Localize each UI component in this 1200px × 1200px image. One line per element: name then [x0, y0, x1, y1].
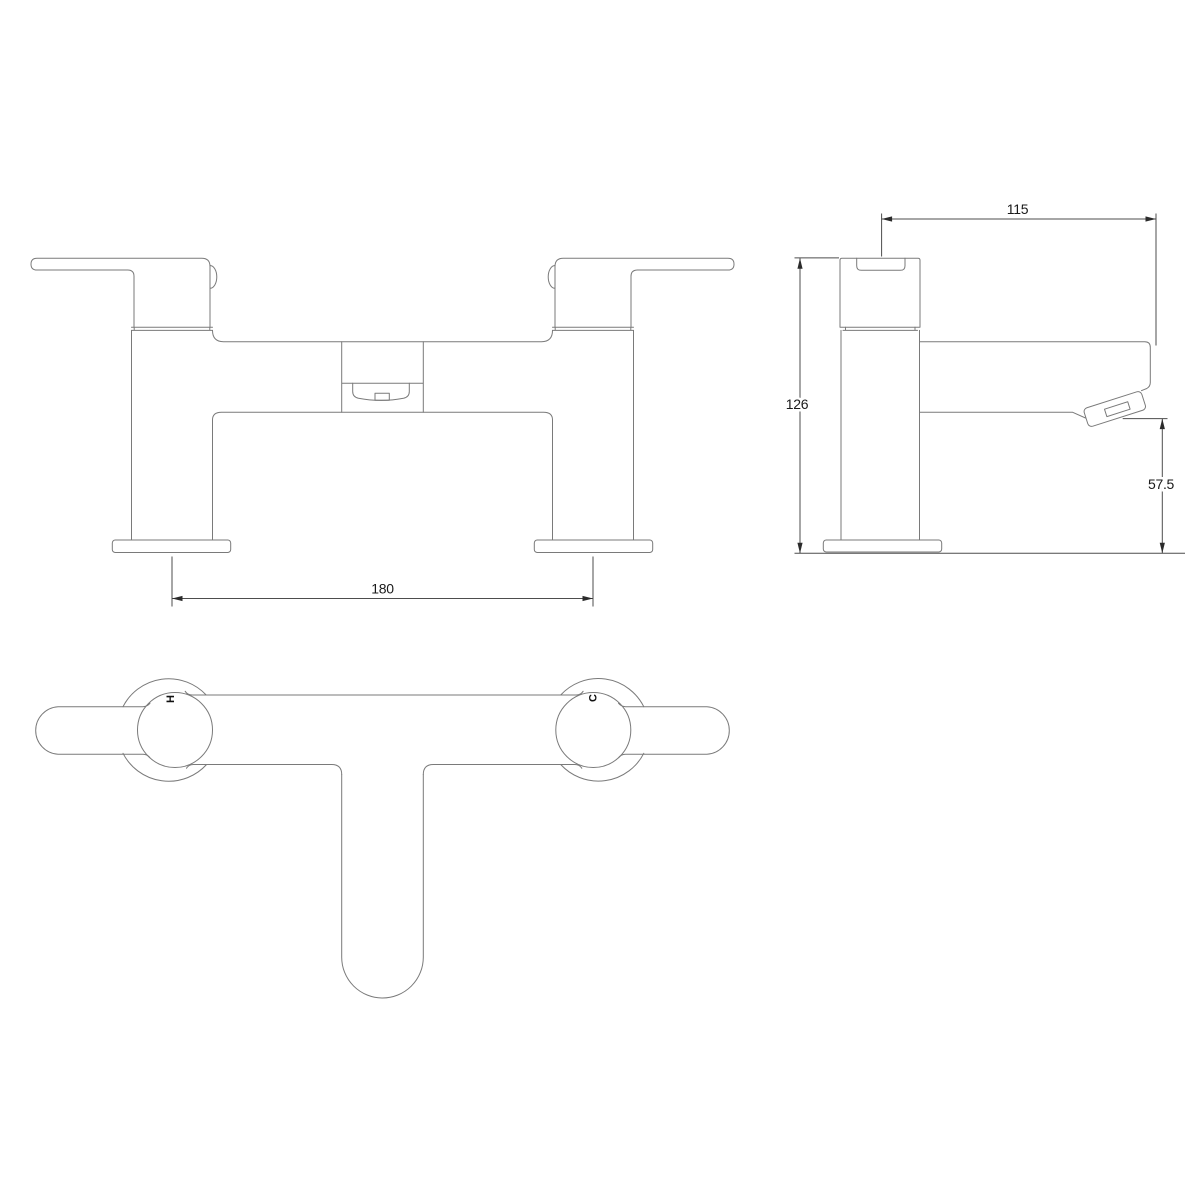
side-spout-top-edge	[920, 342, 1151, 391]
side-spout-aerator	[1104, 402, 1130, 417]
front-bridge-top-edge	[213, 330, 553, 341]
arrowhead-top	[797, 258, 802, 269]
front-spout-outlet	[353, 383, 410, 400]
front-legs	[132, 330, 634, 540]
arrowhead-right	[583, 596, 594, 601]
arrowhead-left	[172, 596, 183, 601]
dim-overall-height-126: 126	[786, 258, 839, 553]
side-handle-lever-end	[857, 258, 905, 270]
side-spout-bottom-edge	[920, 412, 1086, 418]
arrowhead-bottom	[1160, 543, 1165, 554]
plan-right-lever	[619, 703, 730, 758]
drawing-sheet: 180 115	[0, 0, 1200, 1200]
front-spout-aerator	[375, 393, 389, 400]
plan-body-bottom-edge-right	[423, 765, 582, 775]
front-left-seam	[132, 327, 213, 330]
dimension-text: 57.5	[1148, 476, 1175, 492]
arrowhead-left	[882, 216, 893, 221]
side-handle-block	[840, 258, 920, 327]
front-view: 180	[31, 258, 734, 606]
arrowhead-top	[1160, 419, 1165, 430]
front-left-base-flange	[112, 540, 230, 553]
front-left-handle-pivot-icon	[210, 266, 217, 289]
side-column	[841, 330, 920, 540]
front-bridge-bottom-edge	[213, 412, 553, 420]
dimension-text: 115	[1007, 201, 1029, 217]
plan-left-lever	[36, 703, 150, 758]
hot-label: H	[165, 695, 177, 703]
front-right-base-flange	[534, 540, 652, 553]
front-right-seam	[553, 327, 634, 330]
side-base-flange	[823, 540, 941, 552]
arrowhead-right	[1146, 216, 1157, 221]
front-right-handle-lever	[555, 258, 734, 327]
plan-spout	[342, 775, 424, 999]
arrowhead-bottom	[797, 543, 802, 554]
front-spout-block	[342, 342, 424, 413]
dimension-text: 180	[371, 581, 394, 597]
front-right-handle-pivot-icon	[548, 266, 555, 289]
dim-leg-centres-180: 180	[172, 557, 593, 607]
side-spout-end-cap	[1083, 391, 1146, 428]
dimension-text: 126	[786, 396, 809, 412]
extension-lines	[882, 214, 1156, 346]
dim-spout-projection-115: 115	[882, 201, 1156, 346]
technical-drawing: 180 115	[0, 0, 1200, 1200]
cold-label: C	[588, 694, 600, 702]
dim-spout-outlet-height-57-5: 57.5	[1123, 419, 1175, 554]
plan-view: H C	[36, 679, 730, 998]
side-view: 115 126 57.5	[786, 201, 1185, 553]
front-left-handle-lever	[31, 258, 210, 327]
plan-body-top-edge	[185, 691, 583, 695]
plan-body-bottom-edge-left	[187, 765, 342, 775]
